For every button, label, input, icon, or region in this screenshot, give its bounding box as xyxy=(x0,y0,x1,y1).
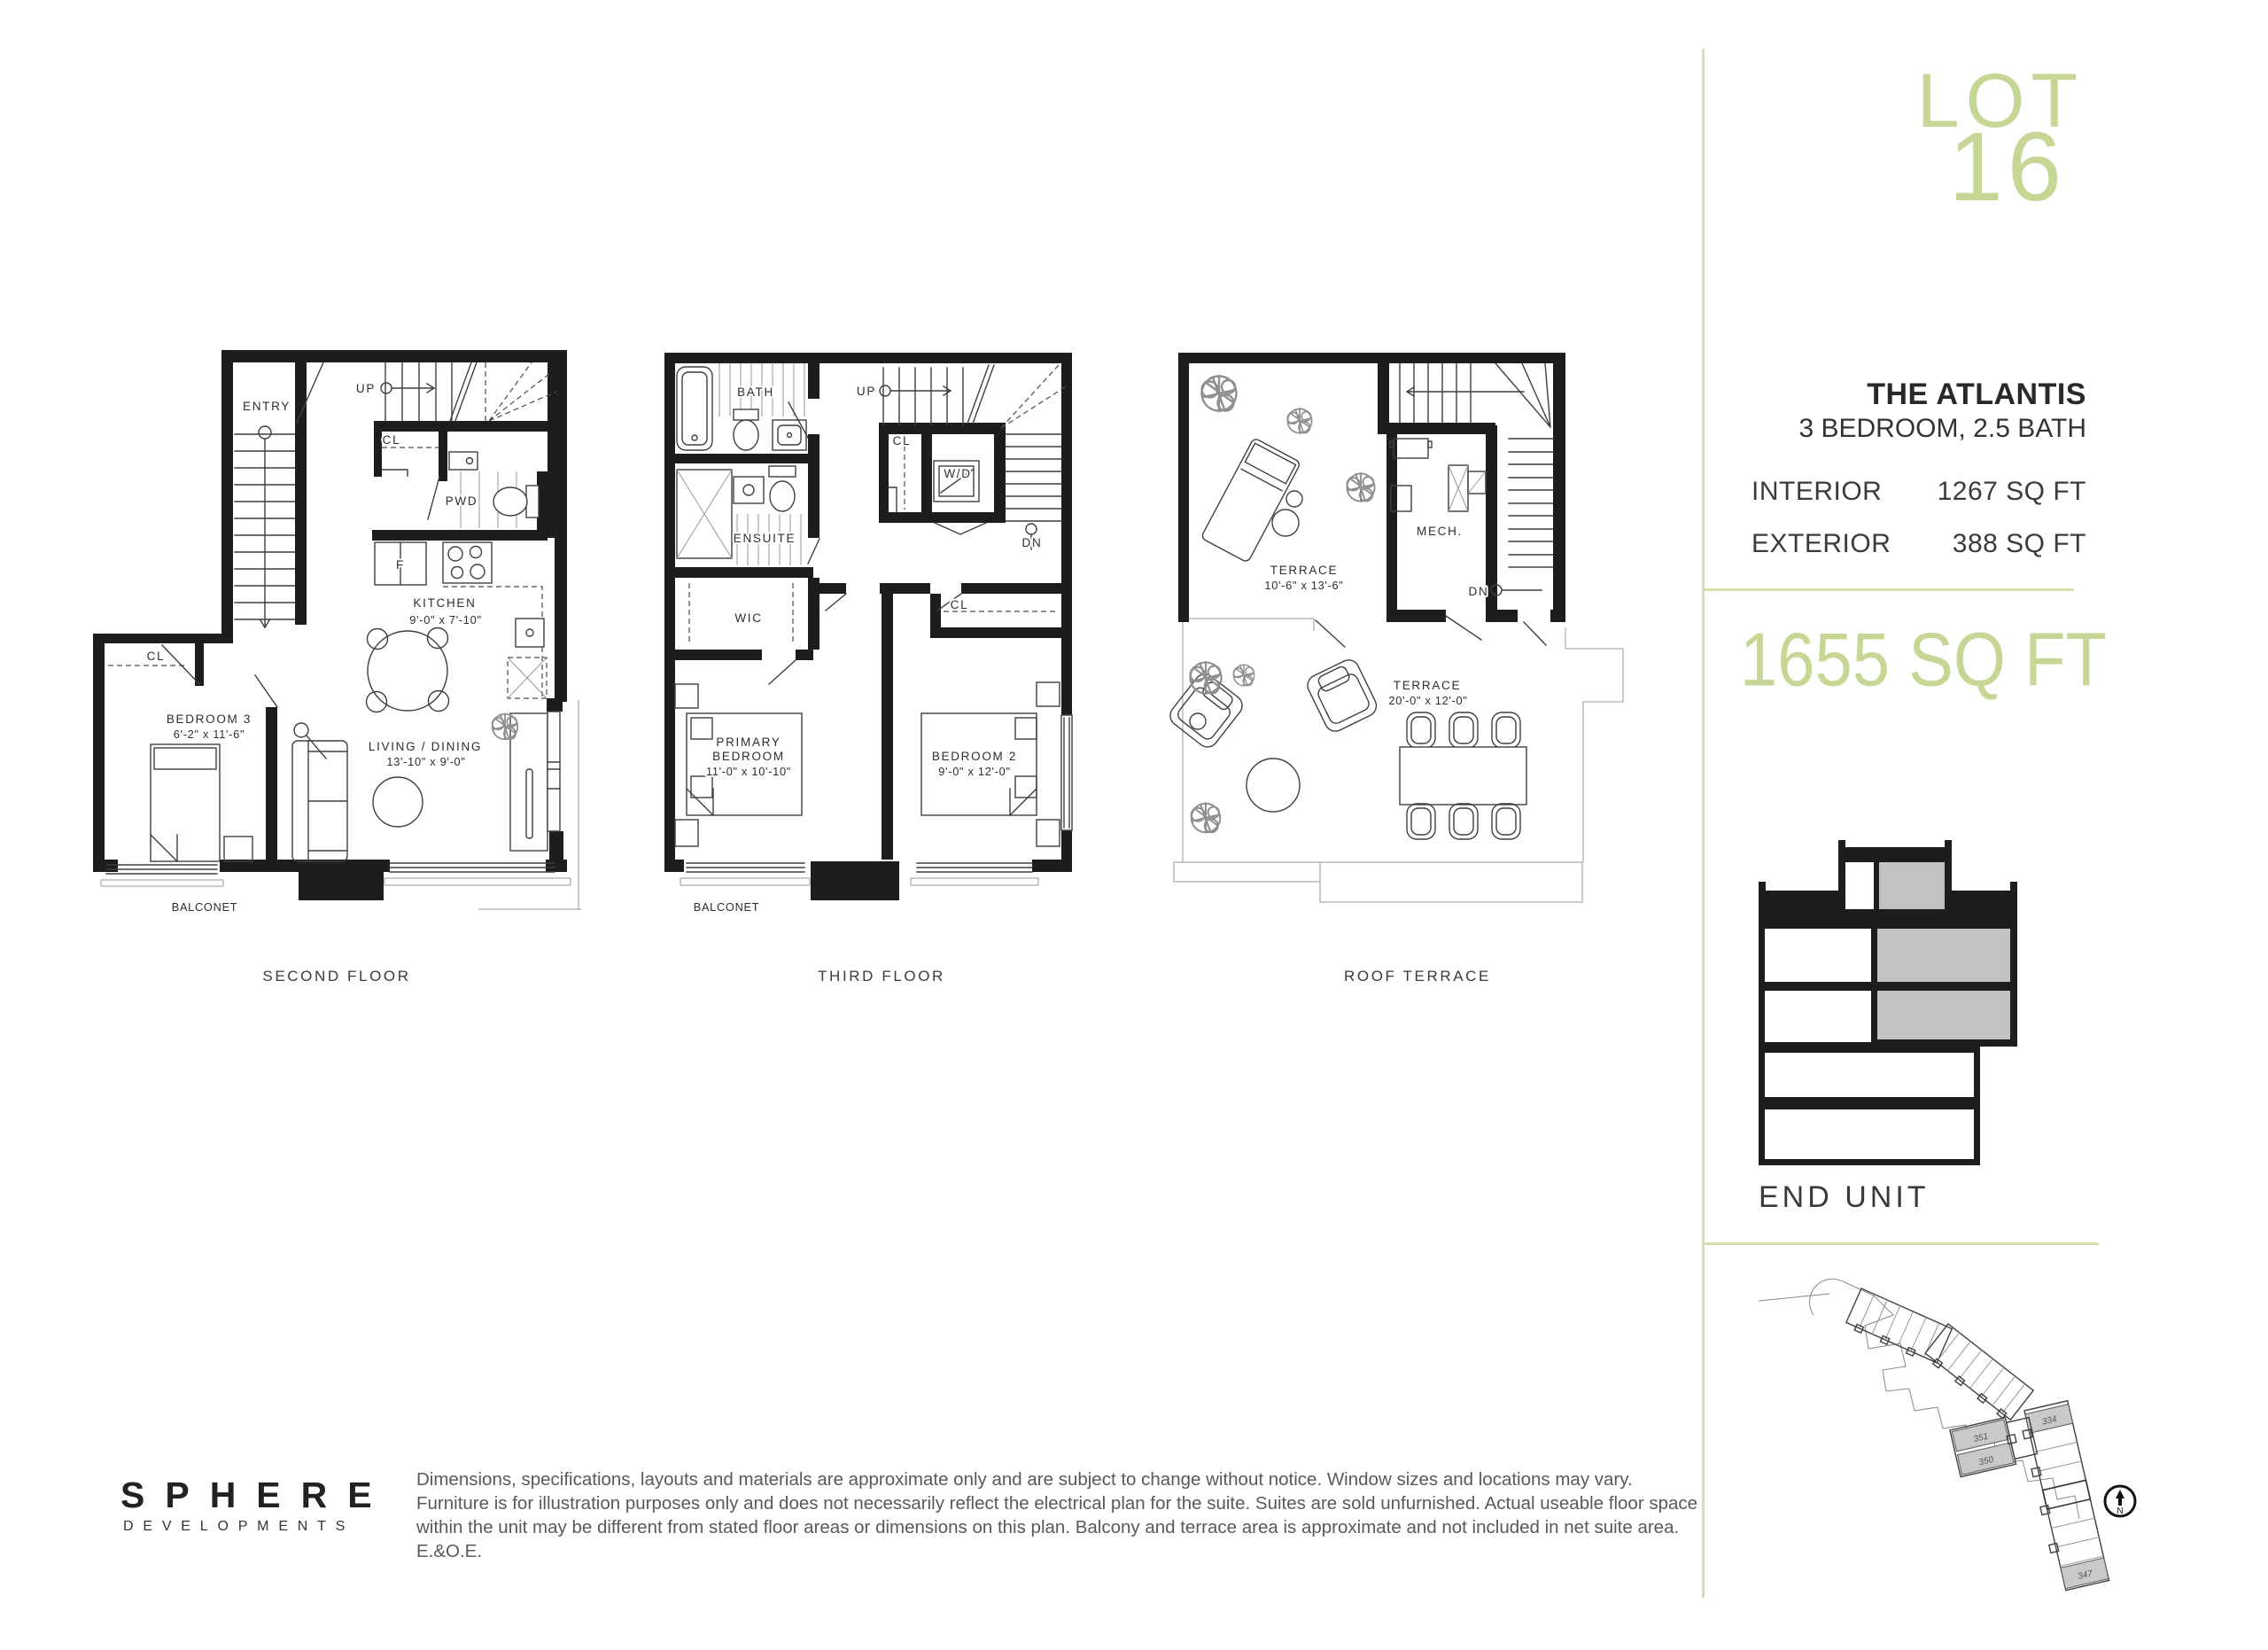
closet-b-label: CL xyxy=(147,650,166,663)
closet-a-label: CL xyxy=(383,433,401,447)
dining-table xyxy=(367,628,449,712)
second-floor-plan: ENTRY UP CL PWD KITCHEN 9'-0" x 7'-10" F… xyxy=(89,346,585,939)
roof-terrace-caption: ROOF TERRACE xyxy=(1169,968,1666,985)
third-floor-plan-svg: BATH UP CL W/D DN ENSUITE WIC CL PRIMARY… xyxy=(656,346,1107,939)
roof-stairs xyxy=(1400,363,1553,595)
terrace-b-label: TERRACE xyxy=(1394,679,1461,692)
ensuite-label: ENSUITE xyxy=(734,532,796,545)
closet-mid xyxy=(889,437,905,512)
interior-label: INTERIOR xyxy=(1751,477,1882,507)
bath-label: BATH xyxy=(737,385,774,399)
primary-label-2: BEDROOM xyxy=(712,750,785,763)
building-section-diagram xyxy=(1754,840,2020,1168)
building-strip-upper xyxy=(1845,1288,2033,1422)
dn-label: DN xyxy=(1469,585,1489,598)
terrace-upper xyxy=(1189,375,1375,647)
compass-needle-icon xyxy=(2116,1490,2124,1498)
bedroom3-dim: 6'-2" x 11'-6" xyxy=(174,728,245,741)
terrace-lower xyxy=(1169,622,1623,902)
up-stairs xyxy=(381,362,556,421)
area-stats: INTERIOR 1267 SQ FT EXTERIOR 388 SQ FT xyxy=(1751,477,2086,581)
compass-n-label: N xyxy=(2117,1506,2123,1516)
third-floor-caption: THIRD FLOOR xyxy=(656,968,1107,985)
laundry-label: W/D xyxy=(944,467,971,480)
room-labels: TERRACE 10'-6" x 13'-6" MECH. DN TERRACE… xyxy=(1264,525,1488,707)
dn-label: DN xyxy=(1022,536,1043,549)
terrace-a-dim: 10'-6" x 13'-6" xyxy=(1264,579,1343,592)
hall-doors xyxy=(826,594,961,611)
kitchen-label: KITCHEN xyxy=(413,596,476,610)
wic-fixtures xyxy=(689,583,796,684)
exterior-value: 388 SQ FT xyxy=(1953,529,2086,559)
terrace-b-dim: 20'-0" x 12'-0" xyxy=(1388,694,1467,707)
closet-a xyxy=(382,448,439,476)
lot16-logo: LOT 16 xyxy=(1736,66,2084,212)
horizontal-divider-1 xyxy=(1704,588,2074,591)
living-label: LIVING / DINING xyxy=(369,740,482,753)
up-stairs xyxy=(880,365,1068,428)
bedroom2-label: BEDROOM 2 xyxy=(932,750,1017,763)
mech-label: MECH. xyxy=(1417,525,1463,538)
exterior-label: EXTERIOR xyxy=(1751,529,1891,559)
entry-label: ENTRY xyxy=(243,400,291,413)
sphere-brand-sub: DEVELOPMENTS xyxy=(120,1519,392,1535)
up-label: UP xyxy=(857,385,876,398)
bedroom3-label: BEDROOM 3 xyxy=(167,712,252,726)
fridge-label: F xyxy=(396,558,405,572)
building-block-350: 351 350 xyxy=(1950,1413,2039,1477)
closet-a-label: CL xyxy=(893,434,912,448)
legal-disclaimer: Dimensions, specifications, layouts and … xyxy=(416,1467,1699,1563)
up-label: UP xyxy=(356,382,376,395)
wic-label: WIC xyxy=(734,611,762,625)
ensuite-fixtures xyxy=(677,466,819,565)
property-boundary xyxy=(1759,1279,2079,1519)
powder-label: PWD xyxy=(446,494,478,508)
second-floor-plan-svg: ENTRY UP CL PWD KITCHEN 9'-0" x 7'-10" F… xyxy=(89,346,585,939)
bath-fixtures xyxy=(677,363,808,450)
balconet-label: BALCONET xyxy=(172,900,238,914)
closet-b-label: CL xyxy=(951,598,969,611)
balconet-label: BALCONET xyxy=(694,900,760,914)
walls xyxy=(664,353,1072,900)
bedroom3-furniture xyxy=(108,645,277,861)
sphere-brand-name: SPHERE xyxy=(120,1475,392,1516)
interior-value: 1267 SQ FT xyxy=(1938,477,2086,507)
roof-terrace-plan-svg: TERRACE 10'-6" x 13'-6" MECH. DN TERRACE… xyxy=(1169,346,1666,939)
room-labels: BATH UP CL W/D DN ENSUITE WIC CL PRIMARY… xyxy=(694,385,1043,914)
north-compass: N xyxy=(2105,1486,2135,1516)
third-floor-plan: BATH UP CL W/D DN ENSUITE WIC CL PRIMARY… xyxy=(656,346,1107,939)
kitchen-dim: 9'-0" x 7'-10" xyxy=(409,613,481,627)
dn-stairs xyxy=(1006,434,1061,549)
exterior-row: EXTERIOR 388 SQ FT xyxy=(1751,529,2086,559)
second-floor-caption: SECOND FLOOR xyxy=(89,968,585,985)
bedroom2-dim: 9'-0" x 12'-0" xyxy=(938,765,1010,778)
roof-terrace-plan: TERRACE 10'-6" x 13'-6" MECH. DN TERRACE… xyxy=(1169,346,1666,939)
unit-spec: 3 BEDROOM, 2.5 BATH xyxy=(1697,414,2086,444)
terrace-a-label: TERRACE xyxy=(1270,564,1338,577)
lot16-logo-line2: 16 xyxy=(1736,122,2084,212)
unit-name: THE ATLANTIS xyxy=(1697,377,2086,412)
living-dim: 13'-10" x 9'-0" xyxy=(386,755,465,768)
vertical-divider xyxy=(1702,49,1705,1598)
primary-label-1: PRIMARY xyxy=(716,735,781,749)
walls xyxy=(93,350,567,900)
horizontal-divider-2 xyxy=(1704,1242,2099,1245)
primary-dim: 11'-0" x 10'-10" xyxy=(706,765,791,778)
total-area: 1655 SQ FT xyxy=(1740,617,2107,703)
sphere-logo: SPHERE DEVELOPMENTS xyxy=(120,1475,392,1535)
end-unit-label: END UNIT xyxy=(1759,1180,1930,1215)
site-plan: 334 347 351 350 N xyxy=(1759,1260,2148,1615)
interior-row: INTERIOR 1267 SQ FT xyxy=(1751,477,2086,507)
